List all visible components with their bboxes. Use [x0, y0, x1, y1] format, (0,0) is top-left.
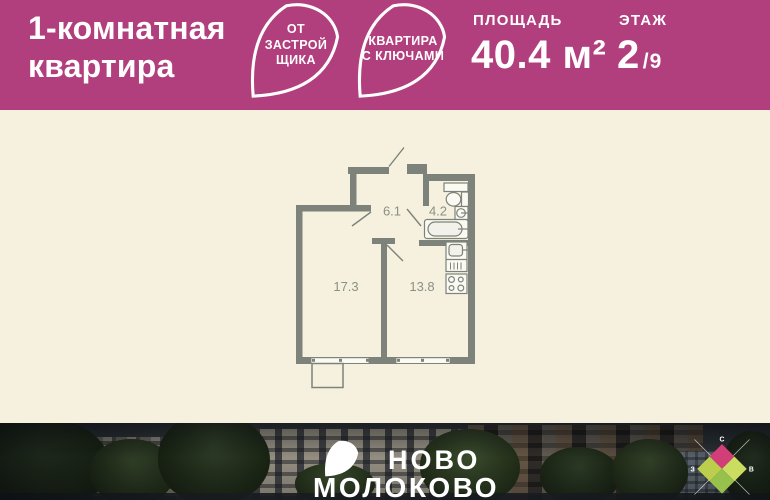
compass-north-label: С	[720, 436, 725, 443]
toilet-tank	[462, 192, 469, 207]
badge-from-developer-text: ОТ ЗАСТРОЙ ЩИКА	[239, 3, 343, 100]
badge-with-keys-text: КВАРТИРА С КЛЮЧАМИ	[346, 3, 450, 100]
building-photo: НОВО МОЛОКОВО С З В	[0, 423, 770, 500]
balcony	[312, 364, 343, 388]
listing-card: 1-комнатная квартира ОТ ЗАСТРОЙ ЩИКА КВА…	[0, 0, 770, 500]
floor-label: ЭТАЖ	[619, 12, 667, 29]
floor-value: 2/9	[617, 33, 662, 78]
floor-total: /9	[643, 50, 663, 73]
header-banner: 1-комнатная квартира ОТ ЗАСТРОЙ ЩИКА КВА…	[0, 0, 770, 110]
badge-text-line: КВАРТИРА	[368, 34, 437, 50]
badge-text-line: ОТ	[287, 22, 305, 38]
hallway-area-label: 6.1	[383, 204, 401, 219]
living-room-area-label: 17.3	[333, 279, 358, 294]
compass-west-label: З	[691, 467, 695, 474]
logo-text-molokovo: МОЛОКОВО	[313, 472, 499, 500]
badge-text-line: ЗАСТРОЙ	[265, 38, 328, 54]
kitchen-area-label: 13.8	[409, 279, 434, 294]
badge-text-line: ЩИКА	[276, 53, 316, 69]
area-value: 40.4 м²	[471, 33, 606, 78]
title-line-2: квартира	[28, 47, 226, 85]
bathtub-inner	[428, 222, 462, 236]
page-title: 1-комнатная квартира	[28, 9, 226, 85]
area-label: ПЛОЩАДЬ	[473, 12, 563, 29]
compass-east-label: В	[749, 467, 754, 474]
badge-text-line: С КЛЮЧАМИ	[362, 49, 444, 65]
title-line-1: 1-комнатная	[28, 9, 226, 47]
badge-from-developer: ОТ ЗАСТРОЙ ЩИКА	[239, 3, 343, 100]
kitchen-sink	[449, 245, 463, 257]
badge-with-keys: КВАРТИРА С КЛЮЧАМИ	[346, 3, 450, 100]
shelf	[444, 183, 468, 192]
floor-number: 2	[617, 33, 640, 77]
bathroom-area-label: 4.2	[429, 204, 447, 219]
toilet-bowl	[446, 193, 461, 207]
compass-icon: С З В	[686, 434, 758, 500]
